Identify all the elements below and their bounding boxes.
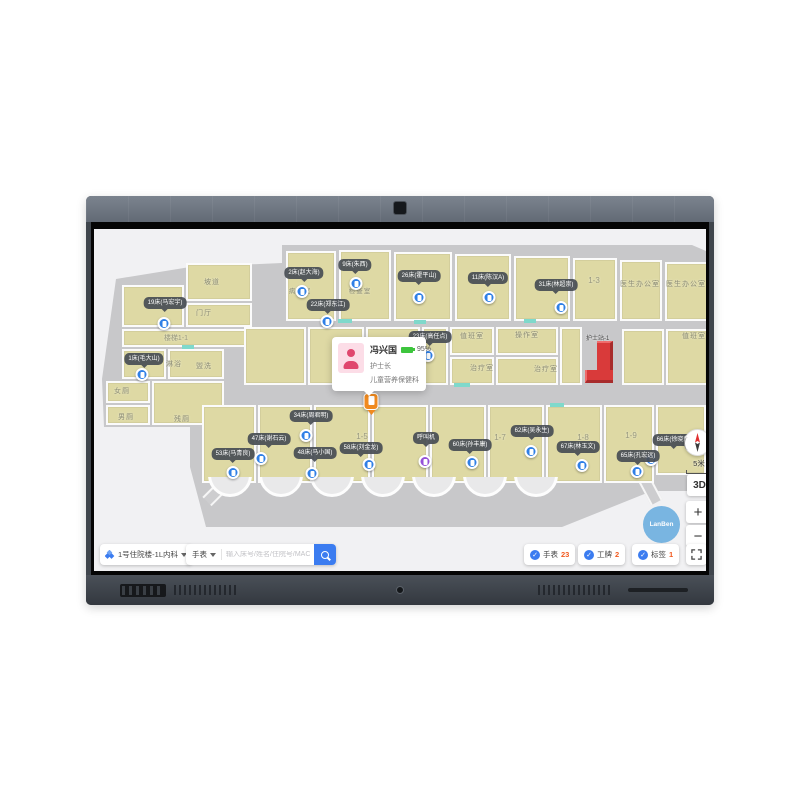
bed-pin[interactable]: [296, 285, 309, 298]
bed-chip[interactable]: 34床(周君明): [290, 410, 333, 422]
power-button[interactable]: [396, 586, 404, 594]
bed-pin[interactable]: [466, 456, 479, 469]
bed-pin[interactable]: [158, 317, 171, 330]
bed-chip[interactable]: 19床(马宏宇): [144, 297, 187, 309]
counter-value: 2: [615, 550, 619, 559]
bed-pin[interactable]: [413, 291, 426, 304]
bed-pin[interactable]: [321, 315, 334, 328]
counter-value: 1: [669, 550, 673, 559]
balcony-arches: [206, 477, 570, 519]
fullscreen-icon: [691, 549, 702, 560]
bed-pin[interactable]: [483, 291, 496, 304]
counter-label: 标签: [651, 549, 666, 560]
check-circle-icon: ✓: [638, 550, 648, 560]
battery-percent: 95%: [417, 346, 431, 353]
bed-chip[interactable]: 47床(谢石云): [248, 433, 291, 445]
bed-chip[interactable]: 62床(吴永生): [511, 425, 554, 437]
device-type-label: 手表: [192, 549, 207, 560]
bed-chip[interactable]: 58床(刘金龙): [340, 442, 383, 454]
nurse-station-label: 护士站-1: [586, 333, 609, 342]
room-label: 值班室: [682, 331, 706, 341]
room-block: [620, 260, 662, 321]
bed-chip[interactable]: 60床(孙丰康): [449, 439, 492, 451]
counter-badge[interactable]: ✓ 工牌 2: [578, 544, 625, 565]
room-label: 女厕: [114, 386, 130, 396]
search-button[interactable]: [314, 544, 336, 565]
room-label: 治疗室: [470, 363, 494, 373]
bed-pin[interactable]: [555, 301, 568, 314]
call-device-pin[interactable]: [419, 455, 432, 468]
bed-pin[interactable]: [306, 467, 319, 480]
counter-label: 工牌: [597, 549, 612, 560]
search-input[interactable]: [222, 551, 314, 558]
bed-chip[interactable]: 2床(赵大海): [284, 267, 323, 279]
check-circle-icon: ✓: [584, 550, 594, 560]
room-label: 值班室: [460, 331, 484, 341]
bed-pin[interactable]: [363, 458, 376, 471]
bed-chip[interactable]: 1床(毛大山): [124, 353, 163, 365]
room-label: 1-5: [356, 432, 368, 441]
display-panel: 坡道 门厅 楼梯1-1 淋浴 盥洗 女厕 男厕 残厕 病房室 检查室 1-3 医…: [86, 196, 714, 605]
device-type-dropdown[interactable]: 手表: [192, 549, 222, 560]
bed-pin[interactable]: [300, 429, 313, 442]
room-block: [455, 254, 511, 321]
room-label: 残厕: [174, 414, 190, 424]
bed-chip[interactable]: 11床(陈汉A): [468, 272, 508, 284]
bed-pin[interactable]: [576, 459, 589, 472]
screen-border: 坡道 门厅 楼梯1-1 淋浴 盥洗 女厕 男厕 残厕 病房室 检查室 1-3 医…: [91, 222, 709, 575]
counter-watch[interactable]: ✓ 手表 23: [524, 544, 575, 565]
map-scale: 5米: [686, 458, 706, 474]
mode-3d-button[interactable]: 3D: [687, 474, 706, 496]
ports-panel: [120, 584, 166, 597]
stylus-tray: [628, 588, 688, 592]
room-label: 男厕: [118, 412, 134, 422]
person-department: 儿童营养保健科: [370, 375, 420, 385]
bed-pin[interactable]: [350, 277, 363, 290]
building-icon: [105, 550, 115, 560]
room-label: 淋浴: [166, 359, 182, 369]
person-popup[interactable]: 冯兴国 95% 护士长 儿童营养保健科: [332, 337, 426, 391]
search-bar[interactable]: 手表: [186, 544, 336, 565]
fullscreen-button[interactable]: [686, 544, 706, 565]
bed-chip[interactable]: 48床(马小国): [294, 447, 337, 459]
room-block: [665, 262, 706, 321]
nurse-station-shape: [585, 370, 613, 383]
bed-pin[interactable]: [631, 465, 644, 478]
person-name: 冯兴国: [370, 343, 397, 356]
bed-pin[interactable]: [255, 452, 268, 465]
counter-value: 23: [561, 550, 569, 559]
room-block: [244, 327, 306, 385]
bed-chip[interactable]: 26床(霍平山): [398, 270, 441, 282]
map-screen[interactable]: 坡道 门厅 楼梯1-1 淋浴 盥洗 女厕 男厕 残厕 病房室 检查室 1-3 医…: [94, 229, 706, 571]
bed-chip[interactable]: 53床(马青良): [212, 448, 255, 460]
bottom-bezel: [86, 575, 714, 605]
bed-chip[interactable]: 65床(孔宏远): [617, 450, 660, 462]
room-label: 1-9: [625, 431, 637, 440]
room-label: 操作室: [515, 330, 539, 340]
bed-pin[interactable]: [227, 466, 240, 479]
room-block: [488, 405, 544, 483]
compass-icon[interactable]: [684, 429, 706, 456]
room-label: 盥洗: [196, 361, 212, 371]
room-block: [573, 258, 617, 321]
person-title: 护士长: [370, 361, 420, 371]
room-label: 坡道: [204, 277, 220, 287]
room-block: [622, 329, 664, 385]
room-block: [394, 252, 452, 321]
battery-icon: [401, 347, 413, 353]
camera-icon: [393, 201, 407, 215]
room-label: 1-3: [588, 276, 600, 285]
bed-chip[interactable]: 31床(林超崇): [535, 279, 578, 291]
bed-chip[interactable]: 22床(郑东江): [307, 299, 350, 311]
counter-label: 手表: [543, 549, 558, 560]
room-label: 医生办公室: [666, 279, 706, 289]
counter-tag[interactable]: ✓ 标签 1: [632, 544, 679, 565]
area-selector-label: 1号住院楼-1L内科: [118, 549, 178, 560]
check-circle-icon: ✓: [530, 550, 540, 560]
bed-pin[interactable]: [136, 368, 149, 381]
room-label: 治疗室: [534, 364, 558, 374]
speaker-grille: [538, 585, 610, 595]
room-block: [560, 327, 582, 385]
room-label: 1-7: [494, 433, 506, 442]
search-icon: [321, 551, 329, 559]
area-selector[interactable]: 1号住院楼-1L内科: [100, 544, 192, 565]
call-device-chip[interactable]: 呼叫机: [413, 432, 439, 444]
room-block: [604, 405, 654, 483]
bed-chip[interactable]: 9床(朱西): [338, 259, 371, 271]
bed-pin[interactable]: [525, 445, 538, 458]
brand-logo: LanBen: [643, 506, 680, 543]
room-label: 门厅: [196, 308, 212, 318]
nurse-avatar-icon: [338, 343, 364, 373]
zoom-in-button[interactable]: +: [686, 501, 706, 523]
camera-bar: [86, 196, 714, 222]
bed-chip[interactable]: 67床(林玉文): [557, 441, 600, 453]
speaker-grille: [174, 585, 238, 595]
caret-down-icon: [210, 553, 216, 560]
room-label: 医生办公室: [620, 279, 660, 289]
room-label: 楼梯1-1: [164, 333, 188, 343]
